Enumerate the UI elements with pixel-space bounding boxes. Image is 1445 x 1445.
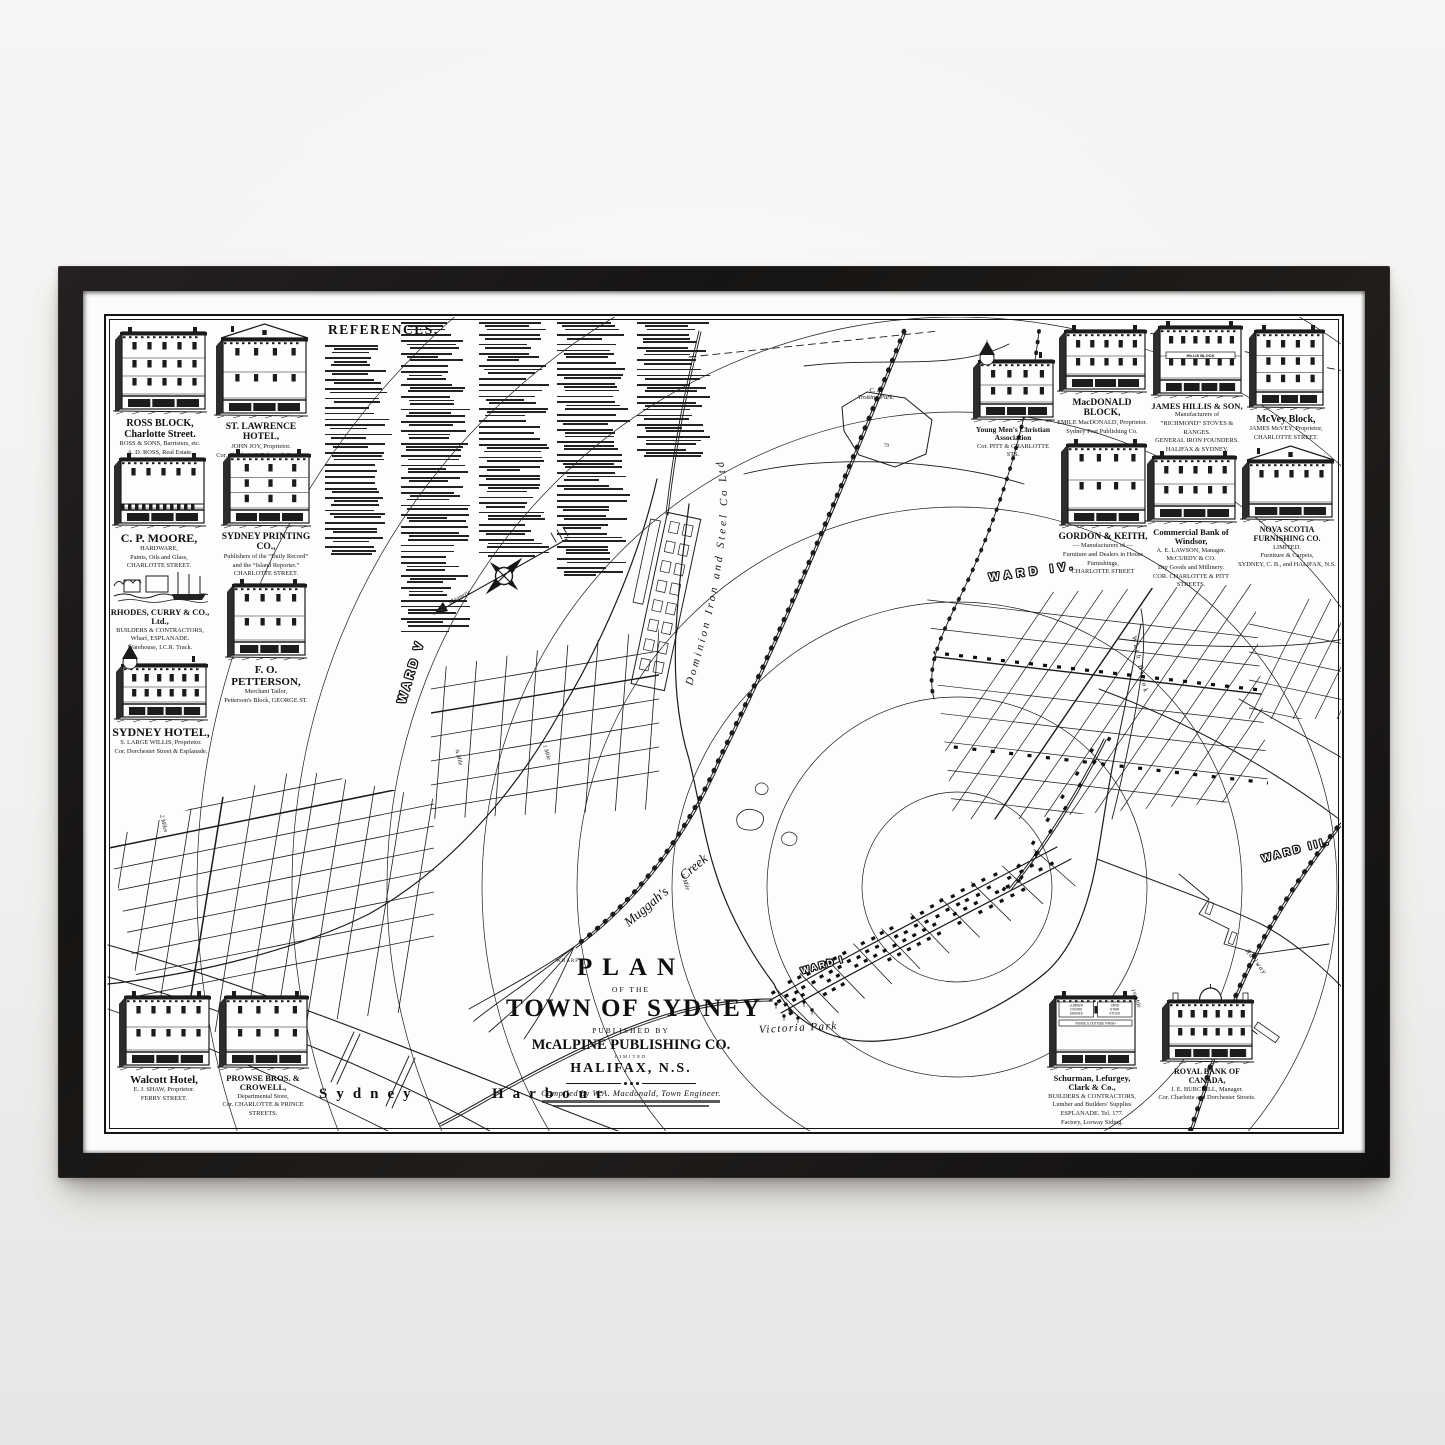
reference-entry-line [479, 408, 548, 410]
references-column [325, 345, 395, 559]
reference-entry-line [646, 430, 704, 432]
ad-title: GORDON & KEITH, [1058, 532, 1148, 542]
reference-entry-line [401, 365, 448, 367]
reference-entry-line [410, 495, 460, 497]
reference-entry-line [567, 338, 602, 340]
reference-entry-line [408, 434, 450, 436]
ad-ns-furnishing: NOVA SCOTIA FURNISHING CO.LIMITED.Furnit… [1238, 444, 1336, 570]
reference-entry-line [325, 424, 385, 426]
ad-fo-petterson: F. O. PETTERSON,Merchant Tailor,Petterso… [224, 576, 308, 705]
ad-caption-line: COR. CHARLOTTE & PITT STREETS. [1144, 573, 1238, 590]
references-block: REFERENCES. [322, 318, 827, 648]
reference-entry-line [325, 407, 369, 409]
reference-entry-line [334, 361, 367, 363]
ad-caption-line: S. LARGE WILLIS, Proprietor. [108, 739, 214, 748]
ad-st-lawrence: ST. LAWRENCE HOTEL,JOHN JOY, Proprietor.… [211, 322, 311, 460]
reference-entry-line [406, 569, 445, 571]
reference-entry-line [557, 362, 616, 364]
reference-entry-line [406, 415, 465, 417]
reference-entry-line [325, 357, 371, 359]
references-column [637, 322, 715, 459]
reference-entry-line [479, 432, 534, 434]
ad-caption-line: JAMES McVEY, Proprietor, [1246, 425, 1326, 434]
reference-entry-line [645, 427, 682, 429]
ad-building-illustration [970, 340, 1056, 424]
reference-entry-line [644, 363, 691, 365]
wharf-label: WHARF [556, 959, 579, 964]
reference-entry-line [410, 359, 462, 361]
ad-building-illustration [111, 450, 207, 530]
title-published: PUBLISHED BY [506, 1026, 756, 1035]
reference-entry-line [407, 378, 446, 380]
ad-caption-line: A. E. LAWSON, Manager. [1144, 547, 1238, 556]
reference-entry-line [564, 448, 619, 450]
reference-entry-line [557, 472, 615, 474]
reference-entry-line [565, 432, 616, 434]
reference-entry-line [637, 334, 689, 336]
reference-entry-line [637, 384, 690, 386]
reference-entry-line [325, 379, 374, 381]
reference-entry-line [330, 392, 387, 394]
trotting-park-number: 79 [884, 444, 889, 449]
reference-entry-line [331, 553, 372, 555]
reference-entry-line [325, 398, 379, 400]
reference-entry-line [332, 455, 382, 457]
reference-entry-line [325, 497, 383, 499]
reference-entry-line [401, 477, 460, 479]
reference-entry-line [557, 546, 608, 548]
ad-caption-line: Paints, Oils and Glass, [105, 554, 213, 563]
reference-entry-line [409, 437, 450, 439]
reference-entry-line [408, 390, 463, 392]
reference-entry-line [401, 384, 452, 386]
reference-entry-line [563, 509, 609, 511]
reference-entry-line [565, 329, 618, 331]
ad-title: MacDONALD BLOCK, [1056, 398, 1148, 419]
ad-building-illustration [216, 988, 310, 1072]
reference-entry-line [334, 382, 381, 384]
reference-entry-line [637, 449, 686, 451]
reference-entry-line [487, 411, 546, 413]
ad-caption-line: EMILE MacDONALD, Proprietor. [1056, 419, 1148, 428]
reference-entry-line [479, 378, 526, 380]
ad-building [970, 340, 1056, 424]
reference-entry-line [637, 415, 692, 417]
reference-entry-line [484, 369, 542, 371]
harbour-label-sydney: Sydney [319, 1086, 420, 1103]
ad-building [1238, 444, 1336, 524]
reference-entry-line [637, 347, 688, 349]
reference-entry-line [333, 541, 370, 543]
ad-building [108, 564, 212, 606]
reference-entry-line [401, 631, 449, 633]
ad-cp-moore: C. P. MOORE,HARDWARE,Paints, Oils and Gl… [105, 450, 213, 571]
ad-walcott: Walcott Hotel,E. J. SHAW, Proprietor.FER… [114, 988, 214, 1103]
building-sign-text: INSIDE & OUTSIDE FINISH [1075, 1022, 1116, 1026]
ad-ymca: Young Men's Christian AssociationCor. PI… [970, 340, 1056, 460]
reference-entry-line [401, 514, 469, 516]
reference-entry-line [401, 322, 447, 324]
ad-caption-line: Merchant Tailor, [224, 688, 308, 697]
reference-entry-line [643, 338, 691, 340]
title-fine-print-line [553, 1105, 709, 1107]
ad-caption-line: BUILDERS & CONTRACTORS, [1046, 1093, 1138, 1102]
title-ornament [566, 1082, 696, 1085]
reference-entry-line [565, 466, 621, 468]
references-column [479, 322, 553, 559]
ad-title: PROWSE BROS. & CROWELL, [216, 1074, 310, 1093]
reference-entry-line [407, 344, 457, 346]
reference-entry-line [325, 452, 384, 454]
title-plan: PLAN [506, 954, 756, 982]
reference-entry-line [565, 436, 614, 438]
reference-entry-line [401, 443, 468, 445]
reference-entry-line [408, 609, 443, 611]
reference-entry-line [479, 502, 527, 504]
harbour-label-harbour: Harbour [492, 1086, 612, 1103]
reference-entry-line [564, 353, 614, 355]
ad-sydney-hotel: SYDNEY HOTEL,S. LARGE WILLIS, Proprietor… [108, 644, 214, 756]
reference-entry-line [325, 370, 386, 372]
reference-entry-line [407, 356, 438, 358]
reference-entry-line [401, 486, 463, 488]
reference-entry-line [645, 325, 689, 327]
ad-caption-line: FERRY STREET. [114, 1095, 214, 1104]
reference-entry-line [325, 537, 383, 539]
ad-building-illustration [224, 576, 308, 662]
ad-building-illustration [112, 564, 208, 606]
reference-entry-line [325, 546, 374, 548]
reference-entry-line [479, 334, 540, 336]
reference-entry-line [334, 500, 378, 502]
ad-title: SYDNEY HOTEL, [108, 726, 214, 739]
reference-entry-line [401, 465, 465, 467]
reference-entry-line [408, 325, 443, 327]
reference-entry-line [637, 375, 710, 377]
ad-caption-line: ROSS & SONS, Barristers, etc. [110, 440, 210, 449]
ad-royal-bank: ROYAL BANK OF CANADA,J. E. BURCHILL, Man… [1156, 984, 1258, 1103]
reference-entry-line [557, 567, 606, 569]
reference-entry-line [401, 532, 459, 534]
reference-entry-line [409, 375, 442, 377]
reference-entry-line [479, 322, 541, 324]
reference-entry-line [407, 621, 442, 623]
reference-entry-line [325, 443, 385, 445]
reference-entry-line [334, 348, 378, 350]
reference-entry-line [557, 374, 623, 376]
reference-entry-line [408, 471, 467, 473]
reference-entry-line [557, 420, 630, 422]
ad-building [105, 450, 213, 530]
reference-entry-line [564, 574, 596, 576]
reference-entry-line [557, 524, 608, 526]
ad-caption-line: CHARLOTTE STREET. [1246, 434, 1326, 443]
ad-building-illustration [113, 644, 209, 724]
ad-caption-line: Cor. Dorchester Street & Esplanade. [108, 748, 214, 757]
reference-entry-line [401, 606, 470, 608]
reference-entry-line [566, 552, 610, 554]
reference-entry-line [330, 428, 367, 430]
reference-entry-line [479, 396, 535, 398]
reference-entry-line [410, 578, 455, 580]
title-city: HALIFAX, N.S. [506, 1061, 756, 1077]
reference-entry-line [407, 517, 447, 519]
ad-title: Walcott Hotel, [114, 1074, 214, 1086]
reference-entry-line [637, 424, 703, 426]
reference-entry-line [331, 364, 369, 366]
reference-entry-line [564, 537, 621, 539]
reference-entry-line [325, 528, 377, 530]
reference-entry-line [557, 368, 625, 370]
building-sign-text: STOCK [1109, 1012, 1121, 1016]
title-block: PLAN OF THE TOWN OF SYDNEY PUBLISHED BY … [506, 954, 756, 1107]
reference-entry-line [479, 444, 547, 446]
ad-caption-line: Cor. PITT & CHARLOTTE STS. [970, 443, 1056, 460]
reference-entry-line [401, 340, 463, 342]
reference-entry-line [325, 388, 382, 390]
reference-entry-line [401, 587, 451, 589]
reference-entry-line [557, 441, 614, 443]
reference-entry-line [325, 476, 375, 478]
ad-caption-line: J. E. BURCHILL, Manager. [1156, 1086, 1258, 1095]
reference-entry-line [479, 524, 525, 526]
reference-entry-line [479, 384, 549, 386]
ad-building [1058, 436, 1148, 530]
ad-building: HILLIS BLOCK [1150, 318, 1244, 400]
reference-entry-line [479, 497, 533, 499]
ad-caption-line: Dry Goods and Millinery. [1144, 564, 1238, 573]
reference-entry-line [565, 408, 628, 410]
reference-entry-line [637, 369, 701, 371]
reference-entry-line [325, 419, 389, 421]
ad-caption-line: GENERAL IRON FOUNDERS. [1150, 437, 1244, 446]
reference-entry-line [644, 418, 689, 420]
reference-entry-line [331, 437, 366, 439]
reference-entry-line [325, 482, 375, 484]
trotting-park-line1: C. B. [841, 387, 911, 394]
ad-title: SYDNEY PRINTING CO., [220, 532, 312, 553]
reference-entry-line [643, 341, 697, 343]
ad-building [110, 324, 210, 416]
building-sign-text: HILLIS BLOCK [1187, 353, 1215, 358]
ad-building-illustration [213, 322, 309, 420]
ad-title: C. P. MOORE, [105, 532, 213, 545]
ad-building: LUMBERYARDDOORSSTAIRSASHESSTOCKINSIDE & … [1046, 988, 1138, 1072]
reference-entry-line [488, 515, 541, 517]
ad-title: ST. LAWRENCE HOTEL, [211, 422, 311, 443]
reference-entry-line [557, 533, 607, 535]
ad-building [220, 446, 312, 530]
reference-entry-line [564, 518, 627, 520]
reference-entry-line [407, 508, 468, 510]
reference-entry-line [409, 594, 447, 596]
ad-building-illustration [112, 324, 208, 416]
reference-entry-line [408, 539, 468, 541]
reference-entry-line [406, 446, 463, 448]
reference-entry-line [557, 485, 609, 487]
ad-title: Young Men's Christian Association [970, 426, 1056, 443]
mat-paper-margin: Dominion Iron and Steel Co Ltd REFERENCE… [83, 291, 1365, 1153]
reference-entry-line [557, 401, 615, 403]
reference-entry-line [330, 513, 385, 515]
reference-entry-line [566, 549, 608, 551]
reference-entry-line [487, 546, 549, 548]
reference-entry-line [479, 466, 540, 468]
reference-entry-line [332, 352, 369, 354]
ad-building [114, 988, 214, 1072]
reference-entry-line [487, 460, 544, 462]
ad-caption-line: Publishers of the “Daily Record” [220, 553, 312, 562]
ad-title: RHODES, CURRY & CO., Ltd., [108, 608, 212, 627]
title-of-the: OF THE [506, 985, 756, 994]
reference-entry-line [557, 515, 606, 517]
reference-entry-line [479, 438, 540, 440]
reference-entry-line [407, 566, 459, 568]
reference-entry-line [334, 401, 381, 403]
reference-entry-line [401, 353, 452, 355]
reference-entry-line [333, 446, 369, 448]
ad-building-illustration: HILLIS BLOCK [1150, 318, 1244, 400]
reference-entry-line [479, 539, 534, 541]
ad-ross-block: ROSS BLOCK, Charlotte Street.ROSS & SONS… [110, 324, 210, 457]
reference-entry-line [487, 469, 520, 471]
reference-entry-line [563, 463, 614, 465]
reference-entry-line [562, 540, 625, 542]
reference-entry-line [401, 618, 470, 620]
reference-entry-line [637, 436, 710, 438]
reference-entry-line [646, 350, 706, 352]
reference-entry-line [485, 338, 541, 340]
reference-entry-line [409, 480, 448, 482]
ad-building [216, 988, 310, 1072]
reference-entry-line [484, 451, 540, 453]
ad-caption-line: Petterson's Block, GEORGE ST. [224, 697, 308, 706]
reference-entry-line [409, 591, 443, 593]
ad-building [108, 644, 214, 724]
reference-entry-line [645, 390, 697, 392]
reference-entry-line [563, 527, 601, 529]
ad-hillis: HILLIS BLOCKJAMES HILLIS & SON,Manufactu… [1150, 318, 1244, 455]
reference-entry-line [557, 383, 615, 385]
ad-title: F. O. PETTERSON, [224, 664, 308, 688]
reference-entry-line [331, 504, 379, 506]
ad-building [224, 576, 308, 662]
ad-building [211, 322, 311, 420]
reference-entry-line [479, 365, 546, 367]
reference-entry-line [332, 550, 376, 552]
title-limited: LIMITED [506, 1054, 756, 1059]
ad-caption-line: McCURDY & CO. [1144, 555, 1238, 564]
ad-building [1056, 322, 1148, 396]
ad-building-illustration [1239, 444, 1335, 524]
reference-entry-line [564, 445, 614, 447]
reference-entry-line [479, 390, 542, 392]
reference-entry-line [485, 325, 529, 327]
ad-caption-line: Wharf, ESPLANADE. [108, 635, 212, 644]
reference-entry-line [401, 562, 446, 564]
reference-entry-line [332, 373, 368, 375]
reference-entry-line [637, 402, 696, 404]
ad-caption-line: Manufacturers of [1150, 411, 1244, 420]
reference-entry-line [557, 350, 610, 352]
reference-entry-line [557, 322, 611, 324]
reference-entry-line [557, 429, 613, 431]
reference-entry-line [486, 533, 526, 535]
reference-entry-line [564, 479, 599, 481]
reference-entry-line [564, 386, 617, 388]
ad-caption-line: BUILDERS & CONTRACTORS, [108, 627, 212, 636]
reference-entry-line [564, 571, 622, 573]
reference-entry-line [479, 353, 529, 355]
ad-building [1144, 448, 1238, 526]
reference-entry-line [564, 377, 621, 379]
ad-caption-line: LIMITED. [1238, 544, 1336, 553]
reference-entry-line [567, 476, 626, 478]
reference-entry-line [487, 491, 528, 493]
reference-entry-line [401, 334, 451, 336]
reference-entry-line [557, 414, 616, 416]
ad-macdonald: MacDONALD BLOCK,EMILE MacDONALD, Proprie… [1056, 322, 1148, 436]
ad-caption-line: Furniture and Dealers in House [1058, 551, 1148, 560]
ad-caption-line: SYDNEY, C. B., and HALIFAX, N.S. [1238, 561, 1336, 570]
reference-entry-line [408, 459, 459, 461]
reference-entry-line [410, 403, 454, 405]
reference-entry-line [409, 520, 467, 522]
reference-entry-line [401, 421, 465, 423]
reference-entry-line [401, 556, 446, 558]
reference-entry-line [563, 423, 608, 425]
reference-entry-line [401, 505, 470, 507]
reference-entry-line [409, 400, 454, 402]
reference-entry-line [486, 478, 540, 480]
reference-entry-line [566, 405, 620, 407]
ad-caption-line: ESPLANADE. Tel. 177. [1046, 1110, 1138, 1119]
reference-entry-line [488, 487, 540, 489]
reference-entry-line [479, 426, 540, 428]
reference-entry-line [557, 344, 616, 346]
reference-entry-line [401, 371, 448, 373]
ad-title: ROYAL BANK OF CANADA, [1156, 1068, 1258, 1086]
building-sign-text: SASHES [1070, 1012, 1083, 1016]
reference-entry-line [644, 354, 690, 356]
reference-entry-line [637, 359, 696, 361]
reference-entry-line [557, 506, 609, 508]
reference-entry-line [637, 396, 710, 398]
reference-entry-line [645, 378, 699, 380]
reference-entry-line [401, 455, 461, 457]
ad-caption-line: Factory, Lorway Siding. [1046, 1119, 1138, 1128]
reference-entry-line [401, 396, 450, 398]
ad-title: McVey Block, [1246, 414, 1326, 425]
reference-entry-line [644, 455, 701, 457]
reference-entry-line [325, 470, 377, 472]
reference-entry-line [557, 460, 622, 462]
reference-entry-line [334, 459, 384, 461]
reference-entry-line [557, 454, 622, 456]
ad-caption-line: E. J. SHAW, Proprietor. [114, 1086, 214, 1095]
reference-entry-line [408, 468, 447, 470]
references-column [557, 322, 633, 584]
ad-building-illustration [220, 446, 312, 530]
reference-entry-line [479, 512, 544, 514]
ad-building-illustration [1056, 322, 1148, 396]
reference-entry-line [637, 322, 709, 324]
ad-building [1246, 322, 1326, 412]
reference-entry-line [409, 535, 469, 537]
reference-entry-line [479, 420, 526, 422]
reference-entry-line [325, 464, 375, 466]
ad-schurman: LUMBERYARDDOORSSTAIRSASHESSTOCKINSIDE & … [1046, 988, 1138, 1127]
